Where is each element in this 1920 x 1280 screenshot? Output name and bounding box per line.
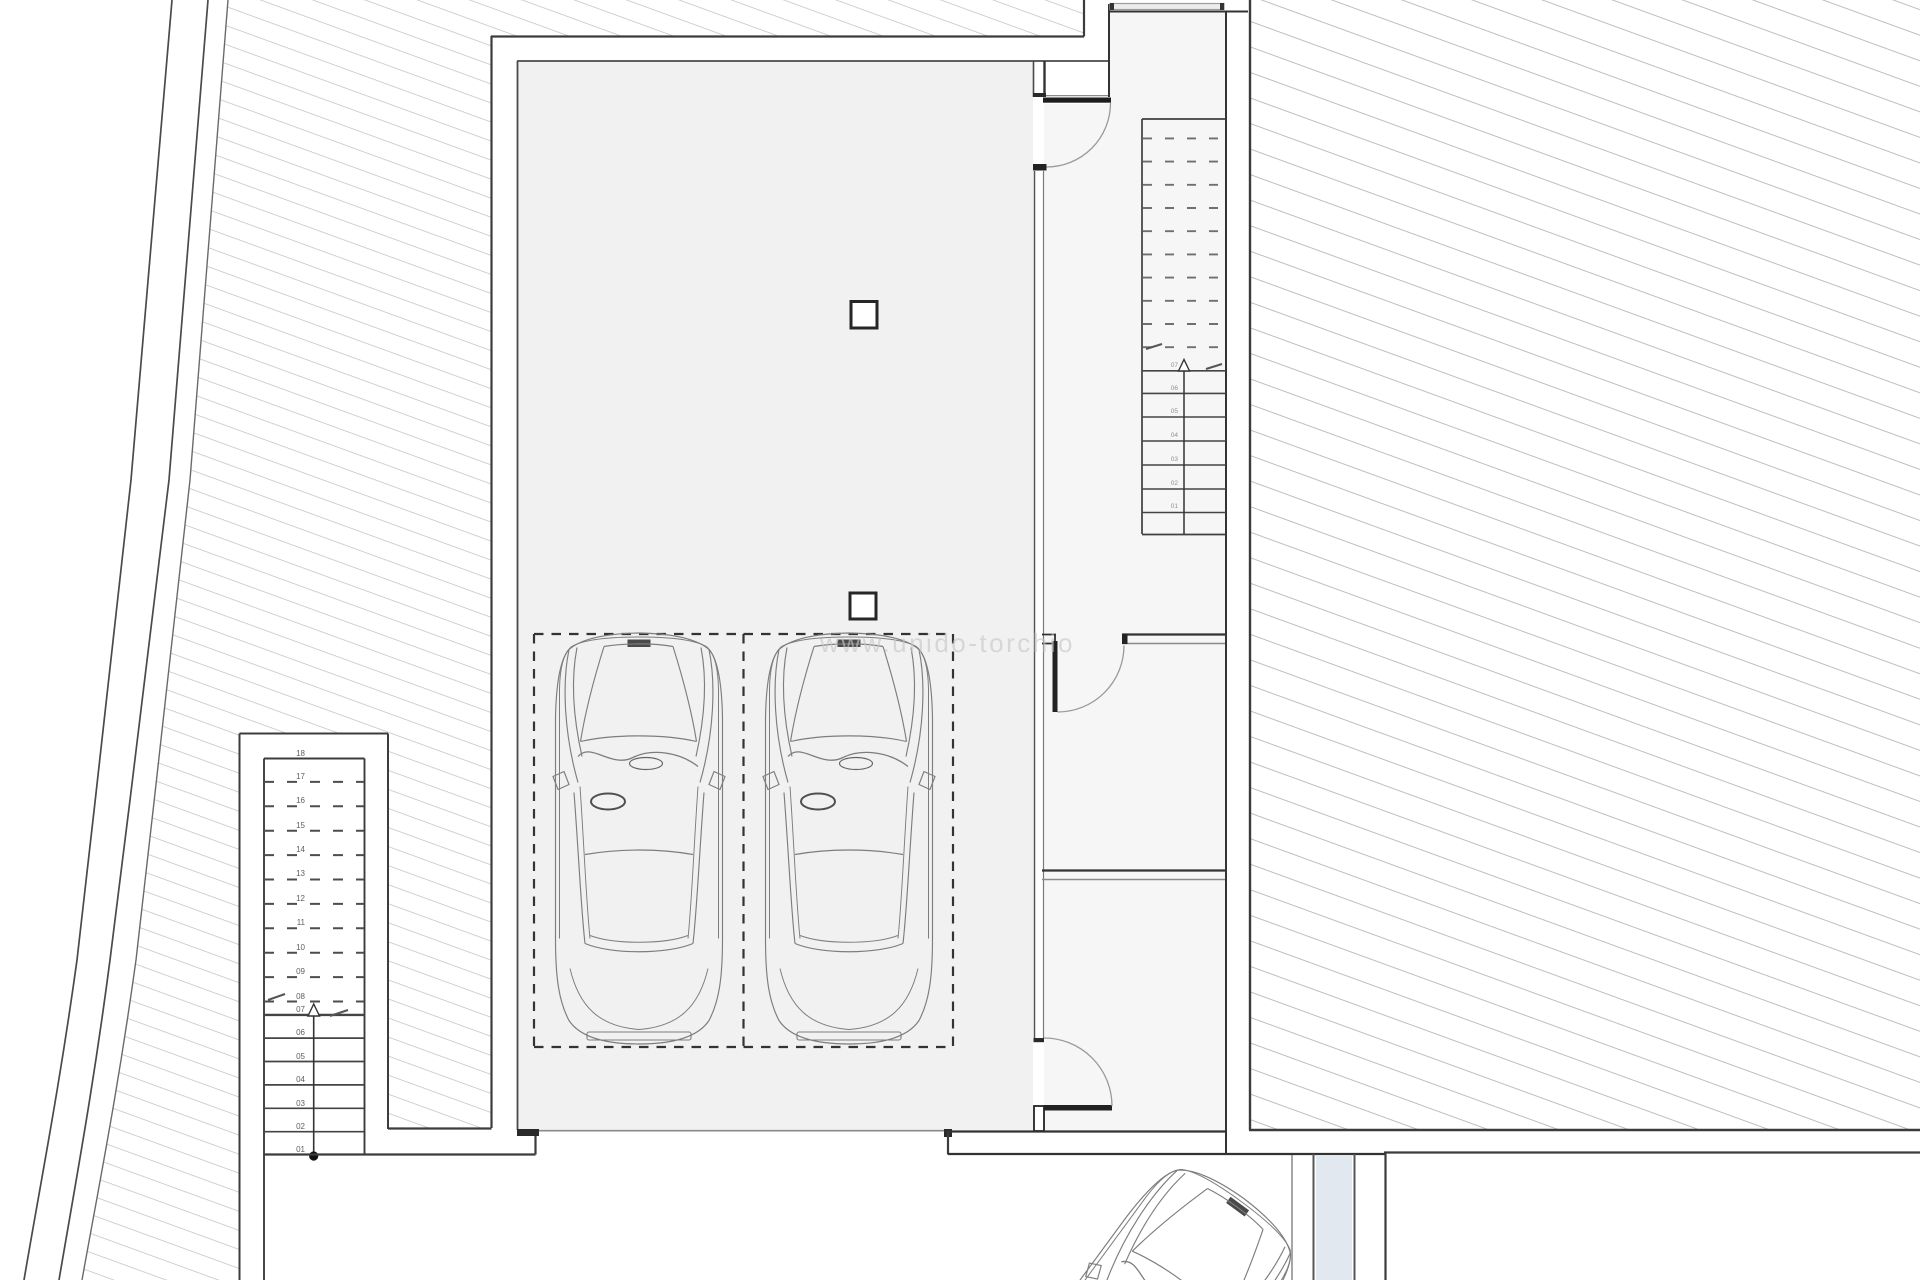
svg-text:07: 07 — [1171, 362, 1179, 369]
svg-text:03: 03 — [296, 1099, 305, 1108]
svg-text:03: 03 — [1171, 456, 1179, 463]
svg-text:09: 09 — [296, 967, 305, 976]
svg-text:05: 05 — [296, 1052, 305, 1061]
svg-text:01: 01 — [1171, 503, 1179, 510]
svg-text:16: 16 — [296, 796, 305, 805]
svg-text:13: 13 — [296, 869, 305, 878]
svg-text:11: 11 — [297, 918, 306, 927]
svg-text:02: 02 — [296, 1122, 305, 1131]
svg-text:04: 04 — [296, 1075, 305, 1084]
svg-text:08: 08 — [296, 992, 305, 1001]
svg-text:01: 01 — [296, 1145, 305, 1154]
svg-text:06: 06 — [296, 1028, 305, 1037]
svg-text:12: 12 — [296, 894, 305, 903]
svg-text:14: 14 — [296, 845, 305, 854]
svg-text:www.unido-torchio: www.unido-torchio — [819, 628, 1075, 658]
svg-text:18: 18 — [296, 749, 305, 758]
svg-text:04: 04 — [1171, 432, 1179, 439]
svg-text:05: 05 — [1171, 408, 1179, 415]
svg-text:15: 15 — [296, 821, 305, 830]
svg-text:17: 17 — [296, 772, 305, 781]
svg-text:06: 06 — [1171, 385, 1179, 392]
svg-text:10: 10 — [296, 943, 305, 952]
svg-text:07: 07 — [296, 1005, 305, 1014]
svg-text:02: 02 — [1171, 480, 1179, 487]
